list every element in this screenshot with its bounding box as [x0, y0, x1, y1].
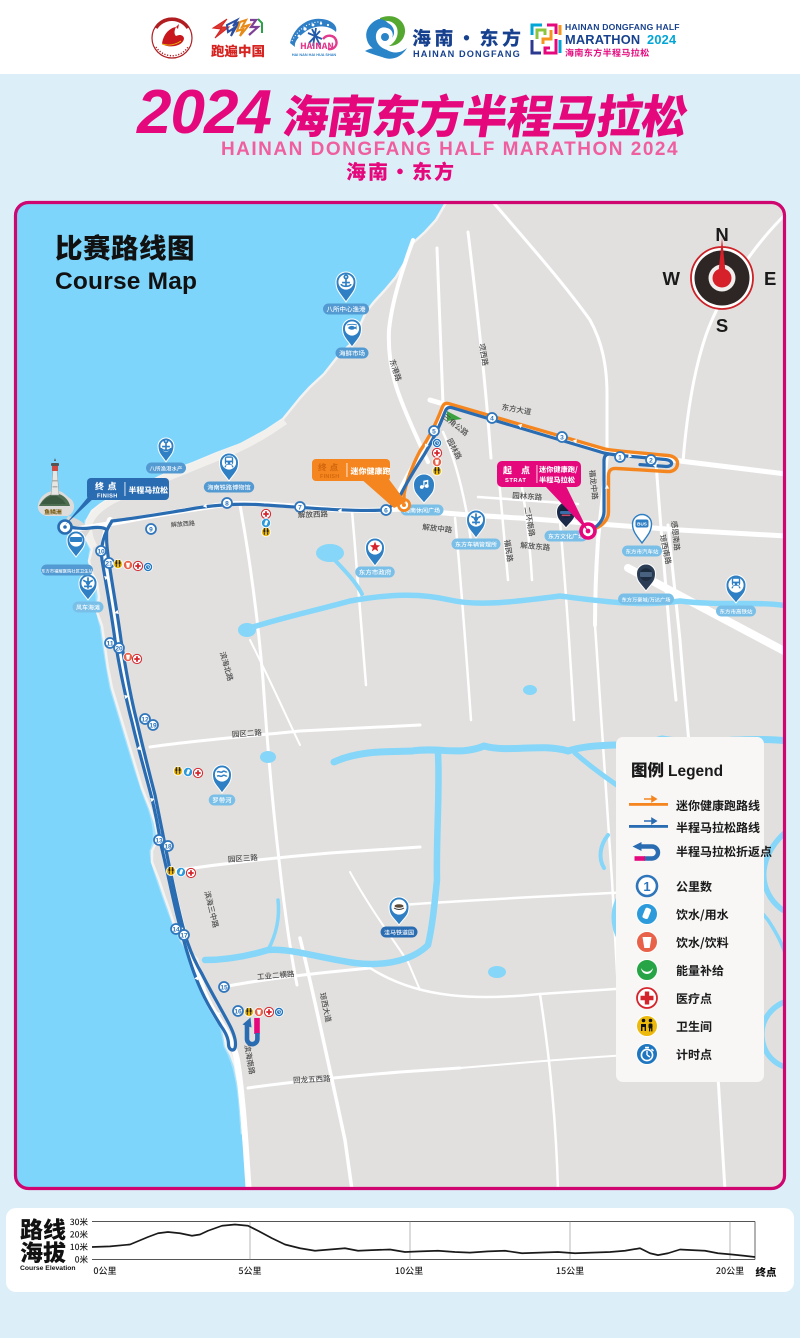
svg-text:2024: 2024	[136, 78, 271, 147]
svg-text:7: 7	[298, 504, 302, 511]
svg-text:FINISH: FINISH	[320, 474, 339, 480]
svg-text:FINISH: FINISH	[97, 494, 118, 500]
svg-text:STRAT: STRAT	[505, 478, 526, 484]
svg-text:15: 15	[220, 984, 228, 991]
svg-text:BUS: BUS	[637, 522, 647, 527]
svg-text:Legend: Legend	[668, 763, 723, 780]
svg-text:5: 5	[432, 428, 436, 435]
svg-text:3: 3	[560, 434, 564, 441]
svg-text:HAINAN DONGFANG: HAINAN DONGFANG	[413, 49, 521, 59]
svg-text:20: 20	[115, 645, 123, 652]
svg-text:1: 1	[618, 454, 622, 461]
svg-text:18: 18	[164, 843, 172, 850]
svg-text:W: W	[663, 268, 681, 289]
svg-text:E: E	[764, 268, 776, 289]
svg-text:HAINAN DONGFANG HALF MARATH: HAINAN DONGFANG HALF MARATHON 2024	[221, 139, 679, 160]
svg-text:HAI NAN HAI HUA SHAN: HAI NAN HAI HUA SHAN	[292, 53, 337, 57]
svg-text:N: N	[715, 224, 728, 245]
svg-text:HAINAN DONGFANG HALF: HAINAN DONGFANG HALF	[565, 22, 680, 32]
svg-text:S: S	[716, 315, 728, 336]
svg-text:2: 2	[649, 457, 653, 464]
svg-text:1: 1	[643, 879, 650, 894]
svg-text:16: 16	[234, 1008, 242, 1015]
svg-text:17: 17	[180, 932, 188, 939]
svg-text:19: 19	[149, 722, 157, 729]
svg-text:11: 11	[107, 640, 114, 647]
svg-text:Course Map: Course Map	[55, 268, 197, 295]
svg-text:6: 6	[384, 507, 388, 514]
svg-text:10: 10	[97, 548, 105, 555]
svg-text:2024: 2024	[647, 32, 677, 47]
svg-text:MARATHON: MARATHON	[565, 32, 640, 47]
svg-text:9: 9	[149, 526, 153, 533]
svg-text:4: 4	[490, 415, 494, 422]
svg-text:8: 8	[225, 500, 229, 507]
svg-text:21: 21	[105, 560, 113, 567]
svg-text:Course Elevation: Course Elevation	[20, 1265, 76, 1272]
svg-text:13: 13	[155, 837, 163, 844]
